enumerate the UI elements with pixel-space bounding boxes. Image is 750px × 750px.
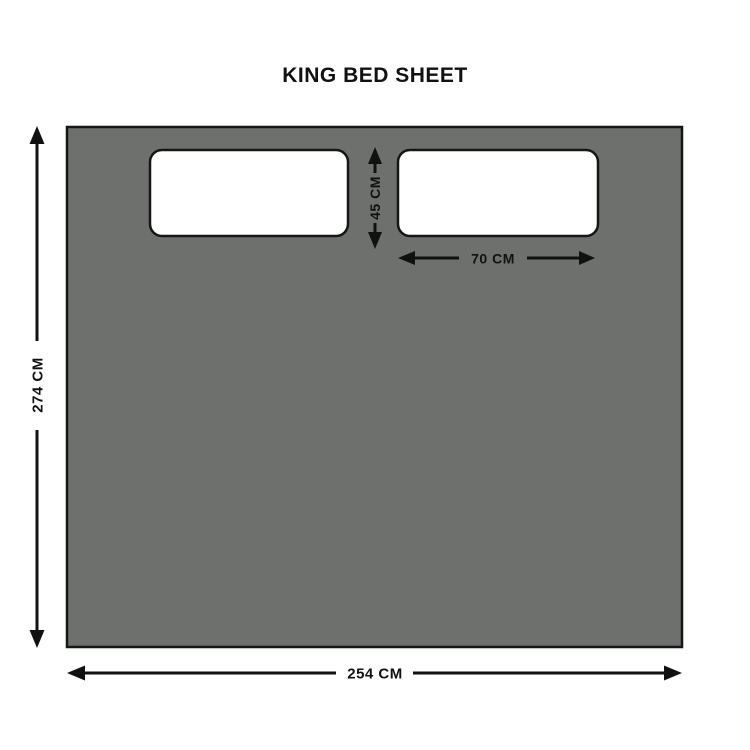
sheet-height-dimension-label: 274 CM xyxy=(29,357,46,413)
arrowhead-down-icon xyxy=(30,630,45,648)
page-title: KING BED SHEET xyxy=(282,64,468,87)
pillow-right xyxy=(398,150,598,236)
sheet-width-dimension-label: 254 CM xyxy=(347,666,403,683)
arrowhead-right-icon xyxy=(664,666,682,681)
bed-sheet-diagram: KING BED SHEET 274 CM 254 CM xyxy=(0,0,750,750)
pillow-width-dimension-label: 70 CM xyxy=(471,250,515,266)
pillow-height-dimension-label: 45 CM xyxy=(367,176,383,220)
diagram-canvas: KING BED SHEET 274 CM 254 CM xyxy=(0,0,750,750)
pillow-left xyxy=(150,150,348,236)
